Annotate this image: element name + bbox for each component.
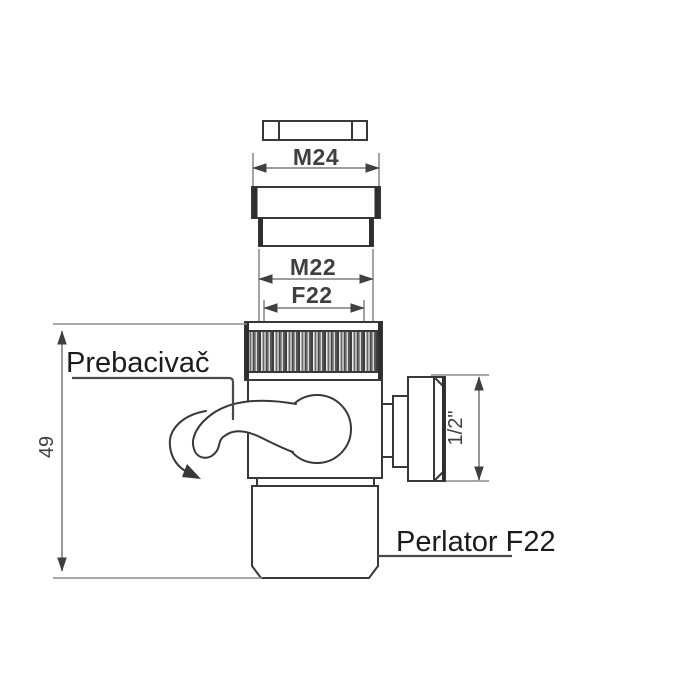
outlet-cup-outline bbox=[252, 486, 378, 578]
rotation-arrow-head bbox=[182, 464, 201, 479]
f22-label: F22 bbox=[291, 282, 332, 308]
side-collar bbox=[393, 396, 408, 467]
aerator-washer bbox=[263, 121, 367, 140]
callout-prebacivac: Prebacivač bbox=[66, 347, 233, 420]
knurled-ring bbox=[245, 322, 382, 380]
m22-label: M22 bbox=[290, 254, 336, 280]
prebacivac-label: Prebacivač bbox=[66, 347, 209, 379]
perlator-label: Perlator F22 bbox=[396, 526, 556, 558]
prebacivac-leader-line bbox=[72, 378, 233, 420]
male-thread-outline bbox=[259, 218, 373, 246]
m24-label: M24 bbox=[293, 144, 339, 170]
height-label: 49 bbox=[36, 436, 58, 458]
diverter-valve-drawing: M24 M22 F22 bbox=[0, 0, 700, 700]
dim-m24: M24 bbox=[253, 144, 379, 186]
side-nut bbox=[408, 377, 445, 481]
aerator-nut-outline bbox=[252, 187, 380, 218]
side-stub bbox=[382, 404, 393, 457]
aerator-nut-block bbox=[252, 187, 380, 218]
side-connector bbox=[382, 377, 445, 481]
half-inch-label: 1/2" bbox=[445, 411, 467, 446]
male-thread-block bbox=[259, 218, 373, 246]
technical-drawing-canvas: M24 M22 F22 bbox=[0, 0, 700, 700]
outlet-cup bbox=[252, 479, 378, 578]
callout-perlator: Perlator F22 bbox=[377, 526, 556, 558]
knurl-texture bbox=[246, 332, 381, 372]
dim-f22: F22 bbox=[264, 282, 364, 321]
